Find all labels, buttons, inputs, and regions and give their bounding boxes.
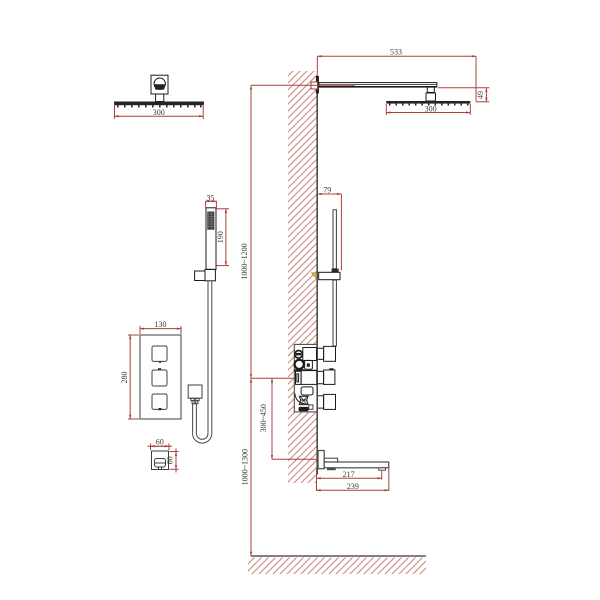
svg-text:79: 79 — [323, 185, 331, 194]
svg-text:60: 60 — [166, 456, 175, 464]
svg-text:239: 239 — [347, 482, 359, 491]
svg-text:35: 35 — [206, 193, 214, 202]
svg-text:300: 300 — [153, 108, 165, 117]
svg-text:130: 130 — [155, 320, 167, 329]
svg-text:280: 280 — [120, 372, 129, 384]
svg-text:190: 190 — [216, 231, 225, 243]
svg-text:217: 217 — [343, 470, 355, 479]
svg-text:49: 49 — [476, 91, 485, 99]
svg-text:1000~1200: 1000~1200 — [240, 243, 249, 279]
svg-text:300~450: 300~450 — [259, 404, 268, 432]
svg-text:1000~1300: 1000~1300 — [241, 449, 250, 485]
svg-text:60: 60 — [156, 438, 164, 447]
svg-text:300: 300 — [425, 104, 437, 113]
svg-text:533: 533 — [390, 48, 402, 57]
